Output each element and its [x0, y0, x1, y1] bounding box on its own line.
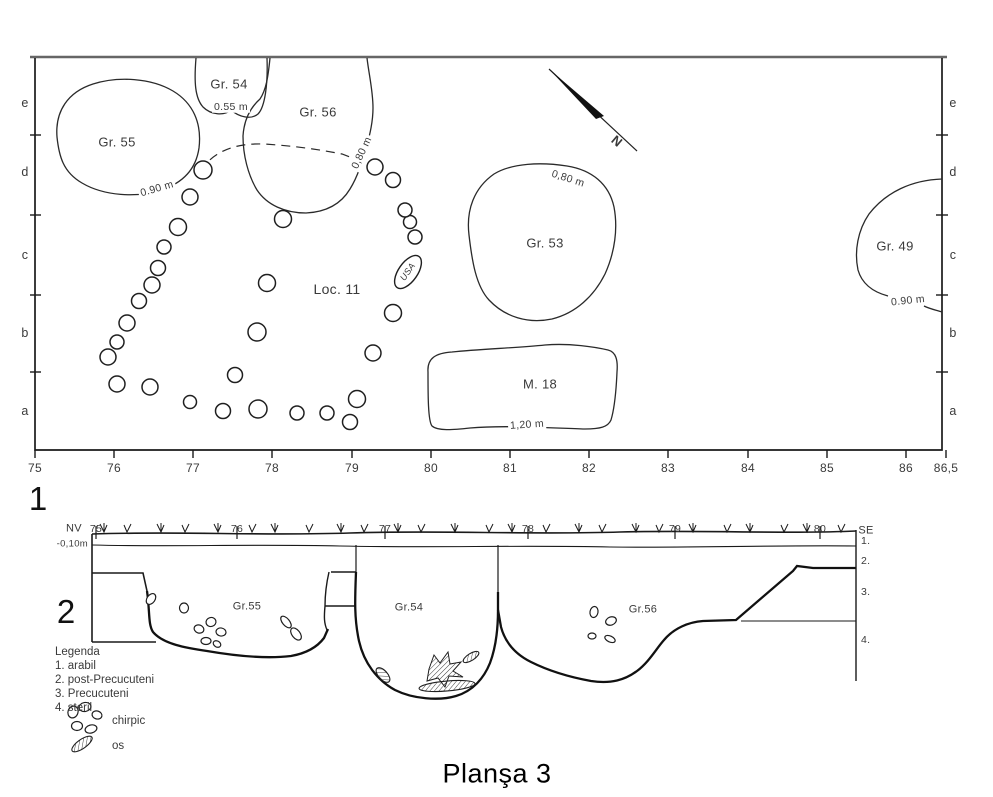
chirpic-stone — [604, 615, 617, 626]
grass-tuft — [508, 523, 515, 532]
section-gr54-upper-walls — [356, 545, 498, 592]
posthole — [248, 323, 266, 341]
grass-tuft — [486, 524, 493, 532]
grass-tuft — [746, 523, 753, 532]
section-meter-label: 77 — [379, 524, 391, 535]
row-label-left: c — [22, 249, 29, 262]
posthole — [170, 219, 187, 236]
legend-symbol-chirpic-label: chirpic — [112, 715, 145, 727]
chirpic-stone — [205, 616, 217, 627]
chirpic-stone — [201, 638, 211, 645]
chirpic-stone — [193, 624, 205, 635]
posthole — [100, 349, 116, 365]
posthole — [184, 396, 197, 409]
posthole — [132, 294, 147, 309]
layer-number: 1. — [861, 536, 870, 547]
row-label-left: e — [21, 97, 28, 110]
section-elevation-label: -0,10m — [57, 539, 88, 549]
layer-number: 2. — [861, 556, 870, 567]
section-feature-label: Gr.56 — [629, 605, 657, 616]
legend-item-arabil: 1. arabil — [55, 660, 96, 672]
posthole — [228, 368, 243, 383]
axis-x-label: 77 — [186, 462, 200, 474]
grass-tuft — [632, 523, 639, 532]
legend-title: Legenda — [55, 646, 100, 658]
axis-x-label: 85 — [820, 462, 834, 474]
grass-tuft — [124, 524, 131, 532]
axis-x-label: 79 — [345, 462, 359, 474]
plate-title: Planşa 3 — [442, 759, 551, 790]
posthole — [110, 335, 124, 349]
section-meter-label: 80 — [814, 524, 826, 535]
depth-label: 1,20 m — [508, 418, 547, 431]
grass-tuft — [337, 523, 344, 532]
row-label-left: d — [21, 166, 28, 179]
posthole — [365, 345, 381, 361]
posthole — [398, 203, 412, 217]
section-meter-label: 75 — [90, 524, 102, 535]
grass-tuft — [724, 524, 731, 532]
feature-label: Gr. 54 — [210, 78, 247, 91]
posthole — [275, 211, 292, 228]
axis-x-label: 80 — [424, 462, 438, 474]
section-pit-gr56 — [498, 566, 856, 682]
posthole — [367, 159, 383, 175]
section-feature-label: Gr.54 — [395, 603, 423, 614]
row-label-right: c — [950, 249, 957, 262]
grass-tuft — [781, 524, 788, 532]
chirpic-stone — [604, 634, 617, 644]
row-label-right: d — [949, 166, 956, 179]
chirpic-stone — [84, 724, 98, 735]
posthole — [259, 275, 276, 292]
chirpic-stone — [589, 606, 599, 618]
grass-tuft — [306, 524, 313, 532]
posthole-circles — [100, 159, 422, 430]
posthole — [157, 240, 171, 254]
posthole — [194, 161, 212, 179]
legend-item-post-precucuteni: 2. post-Precucuteni — [55, 674, 154, 686]
posthole — [385, 305, 402, 322]
section-baulk-block — [324, 572, 356, 630]
posthole — [144, 277, 160, 293]
row-label-right: b — [949, 327, 956, 340]
pit-gr56-outline — [243, 58, 373, 213]
posthole — [249, 400, 267, 418]
section-meter-label: 76 — [231, 524, 243, 535]
chirpic-stone — [180, 603, 189, 613]
plate-page: Planşa 3 1 2 NV SE -0,10m N USA Legenda … — [0, 0, 993, 797]
posthole — [408, 230, 422, 244]
feature-label: Gr. 49 — [876, 240, 913, 253]
layer-number: 3. — [861, 587, 870, 598]
posthole — [109, 376, 125, 392]
plan-figure-number: 1 — [29, 480, 47, 518]
plan-border — [35, 58, 942, 450]
axis-x-label: 83 — [661, 462, 675, 474]
posthole — [343, 415, 358, 430]
bone-symbol — [462, 649, 481, 664]
gr55-gr56-dashed-limit — [200, 144, 355, 171]
posthole — [151, 261, 166, 276]
section-direction-nv: NV — [66, 524, 82, 535]
depth-label: 0.55 m — [212, 102, 250, 113]
grass-tuft — [599, 524, 606, 532]
axis-x-label: 81 — [503, 462, 517, 474]
posthole — [386, 173, 401, 188]
grass-tuft — [157, 523, 164, 532]
grass-tuft — [182, 524, 189, 532]
grass-tuft — [249, 524, 256, 532]
section-pit-gr54 — [355, 572, 498, 699]
section-topsoil-line — [92, 545, 856, 547]
section-ground-line — [92, 531, 856, 534]
bone-symbols — [70, 649, 481, 754]
axis-x-label: 84 — [741, 462, 755, 474]
chirpic-stone — [91, 710, 103, 720]
legend-symbol-os-label: os — [112, 740, 124, 752]
grass-tuft — [394, 523, 401, 532]
north-arrow-head — [549, 69, 604, 119]
grass-tufts — [100, 523, 845, 532]
section-meter-label: 78 — [522, 524, 534, 535]
grass-tuft — [543, 524, 550, 532]
row-label-right: a — [949, 405, 956, 418]
chirpic-stone — [289, 626, 304, 642]
posthole — [349, 391, 366, 408]
axis-x-label: 86 — [899, 462, 913, 474]
posthole — [142, 379, 158, 395]
axis-x-label: 86,5 — [934, 462, 959, 474]
section-figure-number: 2 — [57, 593, 75, 631]
posthole — [182, 189, 198, 205]
posthole — [320, 406, 334, 420]
axis-x-label: 76 — [107, 462, 121, 474]
posthole — [119, 315, 135, 331]
grass-tuft — [418, 524, 425, 532]
chirpic-stone — [279, 614, 293, 629]
grass-tuft — [803, 523, 810, 532]
row-label-left: a — [21, 405, 28, 418]
feature-label: Gr. 55 — [98, 136, 135, 149]
axis-x-label: 78 — [265, 462, 279, 474]
grass-tuft — [361, 524, 368, 532]
feature-label: Loc. 11 — [314, 282, 361, 296]
feature-label: Gr. 53 — [526, 237, 563, 250]
axis-x-label: 75 — [28, 462, 42, 474]
legend-item-steril: 4. steril — [55, 702, 92, 714]
grass-tuft — [575, 523, 582, 532]
chirpic-stone — [212, 639, 222, 648]
row-label-left: b — [21, 327, 28, 340]
layer-number: 4. — [861, 635, 870, 646]
bone-symbol — [70, 733, 95, 754]
feature-label: M. 18 — [523, 378, 557, 391]
grass-tuft — [689, 523, 696, 532]
grass-tuft — [271, 523, 278, 532]
chirpic-stone — [588, 633, 596, 639]
axis-x-label: 82 — [582, 462, 596, 474]
grass-tuft — [214, 523, 221, 532]
feature-label: Gr. 56 — [299, 106, 336, 119]
posthole — [216, 404, 231, 419]
section-meter-label: 79 — [669, 524, 681, 535]
section-layer2-3-left — [92, 573, 147, 591]
grass-tuft — [451, 523, 458, 532]
chirpic-stone — [215, 627, 226, 637]
posthole — [290, 406, 304, 420]
legend-item-precucuteni: 3. Precucuteni — [55, 688, 129, 700]
section-feature-label: Gr.55 — [233, 602, 261, 613]
chirpic-stone — [72, 722, 83, 731]
row-label-right: e — [949, 97, 956, 110]
